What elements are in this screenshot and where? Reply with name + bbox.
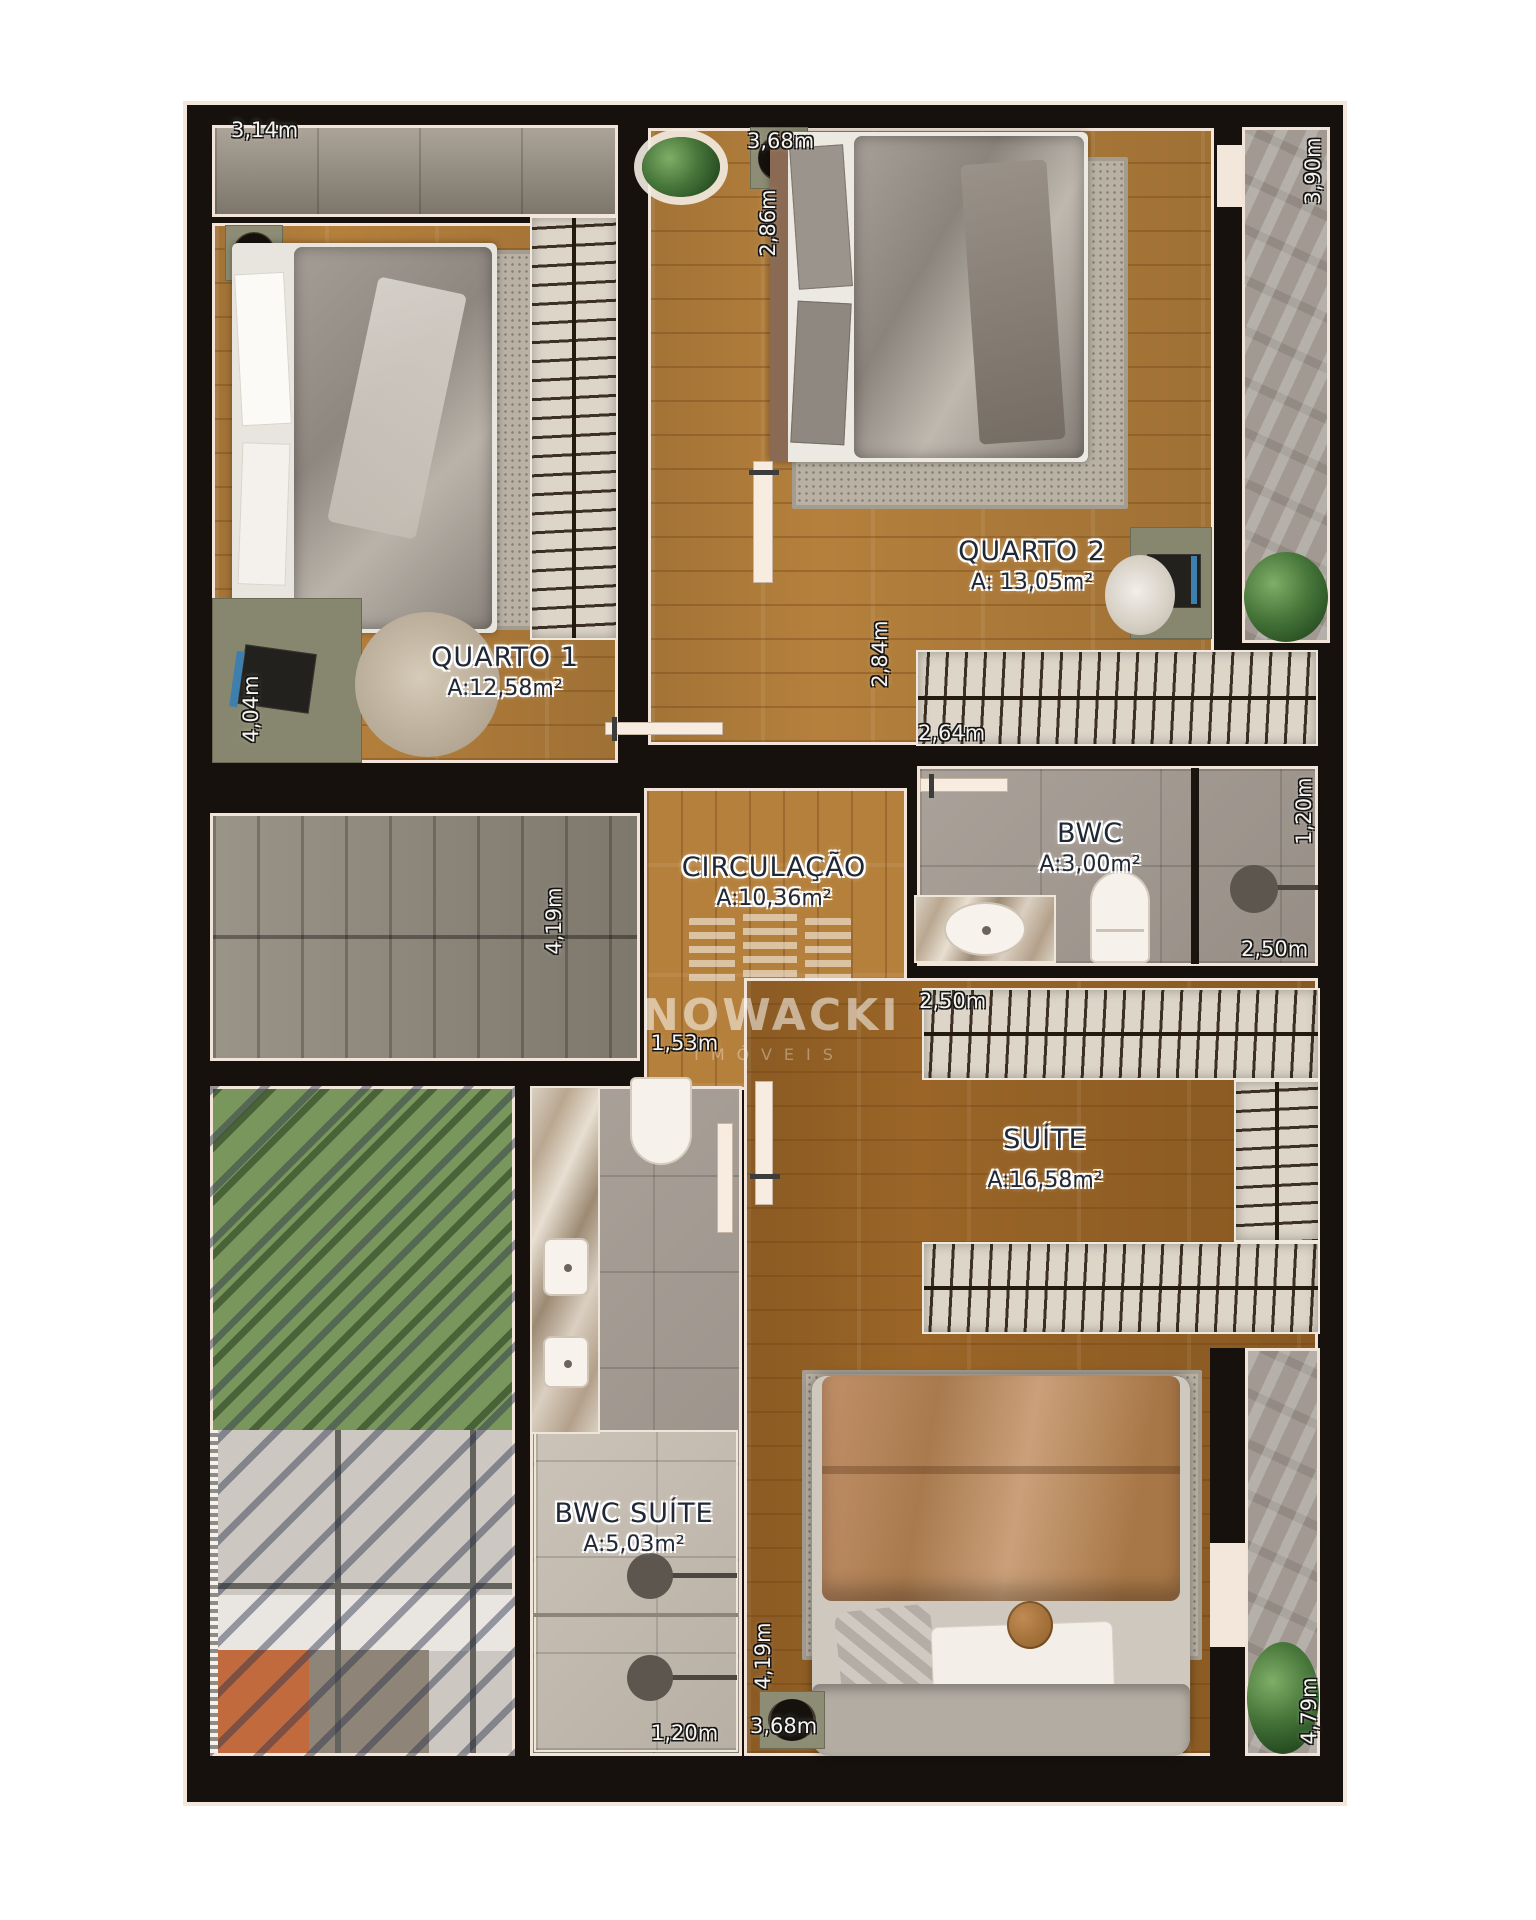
quarto2-pillow-1: [789, 144, 853, 289]
bwc-suite-faucet-2: [564, 1360, 572, 1368]
bwc-suite-faucet-1: [564, 1264, 572, 1272]
quarto1-door-leaf: [605, 722, 723, 735]
bwc-suite-name: BWC SUÍTE: [529, 1497, 739, 1531]
bwc-suite-shower-arm-2: [671, 1675, 737, 1680]
quarto2-door-handle: [749, 470, 779, 475]
balcony-top-door-gap: [1217, 145, 1242, 207]
quarto2-name: QUARTO 2: [927, 535, 1137, 569]
bwc-door-leaf: [920, 778, 1008, 792]
suite-bed: [812, 1376, 1190, 1756]
suite-balcony-door-gap: [1210, 1543, 1245, 1647]
dim-quarto2-top: 3,68m: [747, 129, 814, 153]
quarto1-name: QUARTO 1: [395, 641, 615, 675]
suite-name: SUÍTE: [945, 1123, 1145, 1157]
suite-basketball: [1007, 1601, 1053, 1649]
garden-edge-hatch: [210, 1430, 218, 1753]
dim-circulacao-width: 1,53m: [651, 1031, 718, 1055]
watermark-logo: [642, 900, 897, 984]
suite-door-leaf: [755, 1081, 773, 1205]
bwc-suite-shower-divider: [534, 1613, 738, 1617]
quarto2-pillow-2: [790, 301, 851, 446]
quarto2-area: A: 13,05m²: [927, 569, 1137, 597]
suite-closet-bottom-rack: [922, 1242, 1320, 1334]
quarto1-pillow-1: [234, 272, 292, 426]
quarto2-label: QUARTO 2 A: 13,05m²: [927, 535, 1137, 596]
suite-blanket-fold: [822, 1466, 1180, 1474]
bwc-sink: [944, 902, 1026, 956]
circulacao-name: CIRCULAÇÃO: [649, 851, 899, 885]
bwc-suite-toilet: [630, 1077, 692, 1165]
quarto1-area: A:12,58m²: [395, 675, 615, 703]
dim-quarto2-closet: 2,64m: [918, 721, 985, 745]
bwc-suite-door-leaf: [717, 1123, 733, 1233]
suite-door-handle: [750, 1174, 780, 1179]
dim-bwc-width: 2,50m: [1241, 937, 1308, 961]
suite-headboard: [812, 1684, 1190, 1756]
bwc-suite-sink-1: [543, 1238, 589, 1296]
bwc-suite-shower-head-1: [627, 1553, 673, 1599]
floor-plan-scene: NOWACKI IMÓVEIS QUARTO 1 A:12,58m² QUART…: [0, 0, 1536, 1920]
quarto2-laptop-accent: [1191, 556, 1197, 604]
bwc-door-handle: [929, 774, 934, 798]
watermark-tower-left: [689, 918, 735, 984]
bwc-suite-label: BWC SUÍTE A:5,03m²: [529, 1497, 739, 1558]
dim-balcony-bottom-right: 4,79m: [1296, 1669, 1322, 1753]
quarto1-door-handle: [612, 717, 617, 741]
suite-closet-right-rack: [1234, 1080, 1320, 1242]
suite-area: A:16,58m²: [945, 1167, 1145, 1195]
dim-balcony-top-right: 3,90m: [1300, 129, 1326, 213]
suite-label: SUÍTE A:16,58m²: [945, 1123, 1145, 1194]
dim-suite-bottom: 3,68m: [750, 1714, 817, 1738]
dim-bwc-suite-bottom: 1,20m: [651, 1721, 718, 1745]
bwc-toilet-seat-line: [1096, 929, 1144, 932]
dim-circulacao-height: 2,84m: [867, 612, 893, 696]
quarto2-bed: [770, 132, 1088, 462]
bwc-suite-area: A:5,03m²: [529, 1531, 739, 1559]
suite-blanket: [822, 1376, 1180, 1601]
quarto1-desk: [212, 598, 362, 763]
dim-quarto1-left: 4,04m: [238, 667, 264, 751]
floor-plan: NOWACKI IMÓVEIS QUARTO 1 A:12,58m² QUART…: [183, 101, 1347, 1806]
dim-bwc-suite-top: 4,19m: [541, 879, 567, 963]
quarto1-label: QUARTO 1 A:12,58m²: [395, 641, 615, 702]
bwc-shower-arm: [1272, 885, 1318, 890]
dim-bwc-right: 1,20m: [1291, 769, 1317, 853]
bwc-label: BWC A:3,00m²: [1005, 817, 1175, 878]
quarto1-bed: [232, 243, 497, 633]
watermark-tower-right: [805, 918, 851, 984]
bwc-suite-shower-arm-1: [671, 1573, 737, 1578]
bwc-name: BWC: [1005, 817, 1175, 851]
dim-suite-closet: 2,50m: [919, 989, 986, 1013]
quarto2-door-leaf: [753, 461, 773, 583]
staircase: [210, 813, 640, 1061]
dim-suite-left: 4,19m: [750, 1614, 776, 1698]
dim-quarto1-top: 3,14m: [231, 118, 298, 142]
circulacao-area: A:10,36m²: [649, 885, 899, 913]
bwc-area: A:3,00m²: [1005, 851, 1175, 879]
bwc-faucet: [982, 926, 991, 935]
bwc-suite-shower-head-2: [627, 1655, 673, 1701]
pergola-beams-overlay: [210, 1086, 515, 1756]
watermark-tower-center: [743, 900, 797, 984]
bwc-toilet: [1090, 871, 1150, 963]
balcony-top-plant: [1244, 552, 1328, 642]
dim-quarto2-left: 2,86m: [755, 181, 781, 265]
plant-top-center: [642, 137, 720, 197]
circulacao-label: CIRCULAÇÃO A:10,36m²: [649, 851, 899, 912]
bwc-shower-head: [1230, 865, 1278, 913]
bwc-suite-sink-2: [543, 1336, 589, 1388]
quarto1-closet: [530, 216, 618, 640]
quarto1-pillow-2: [238, 442, 291, 586]
bwc-shower-partition: [1191, 768, 1199, 964]
